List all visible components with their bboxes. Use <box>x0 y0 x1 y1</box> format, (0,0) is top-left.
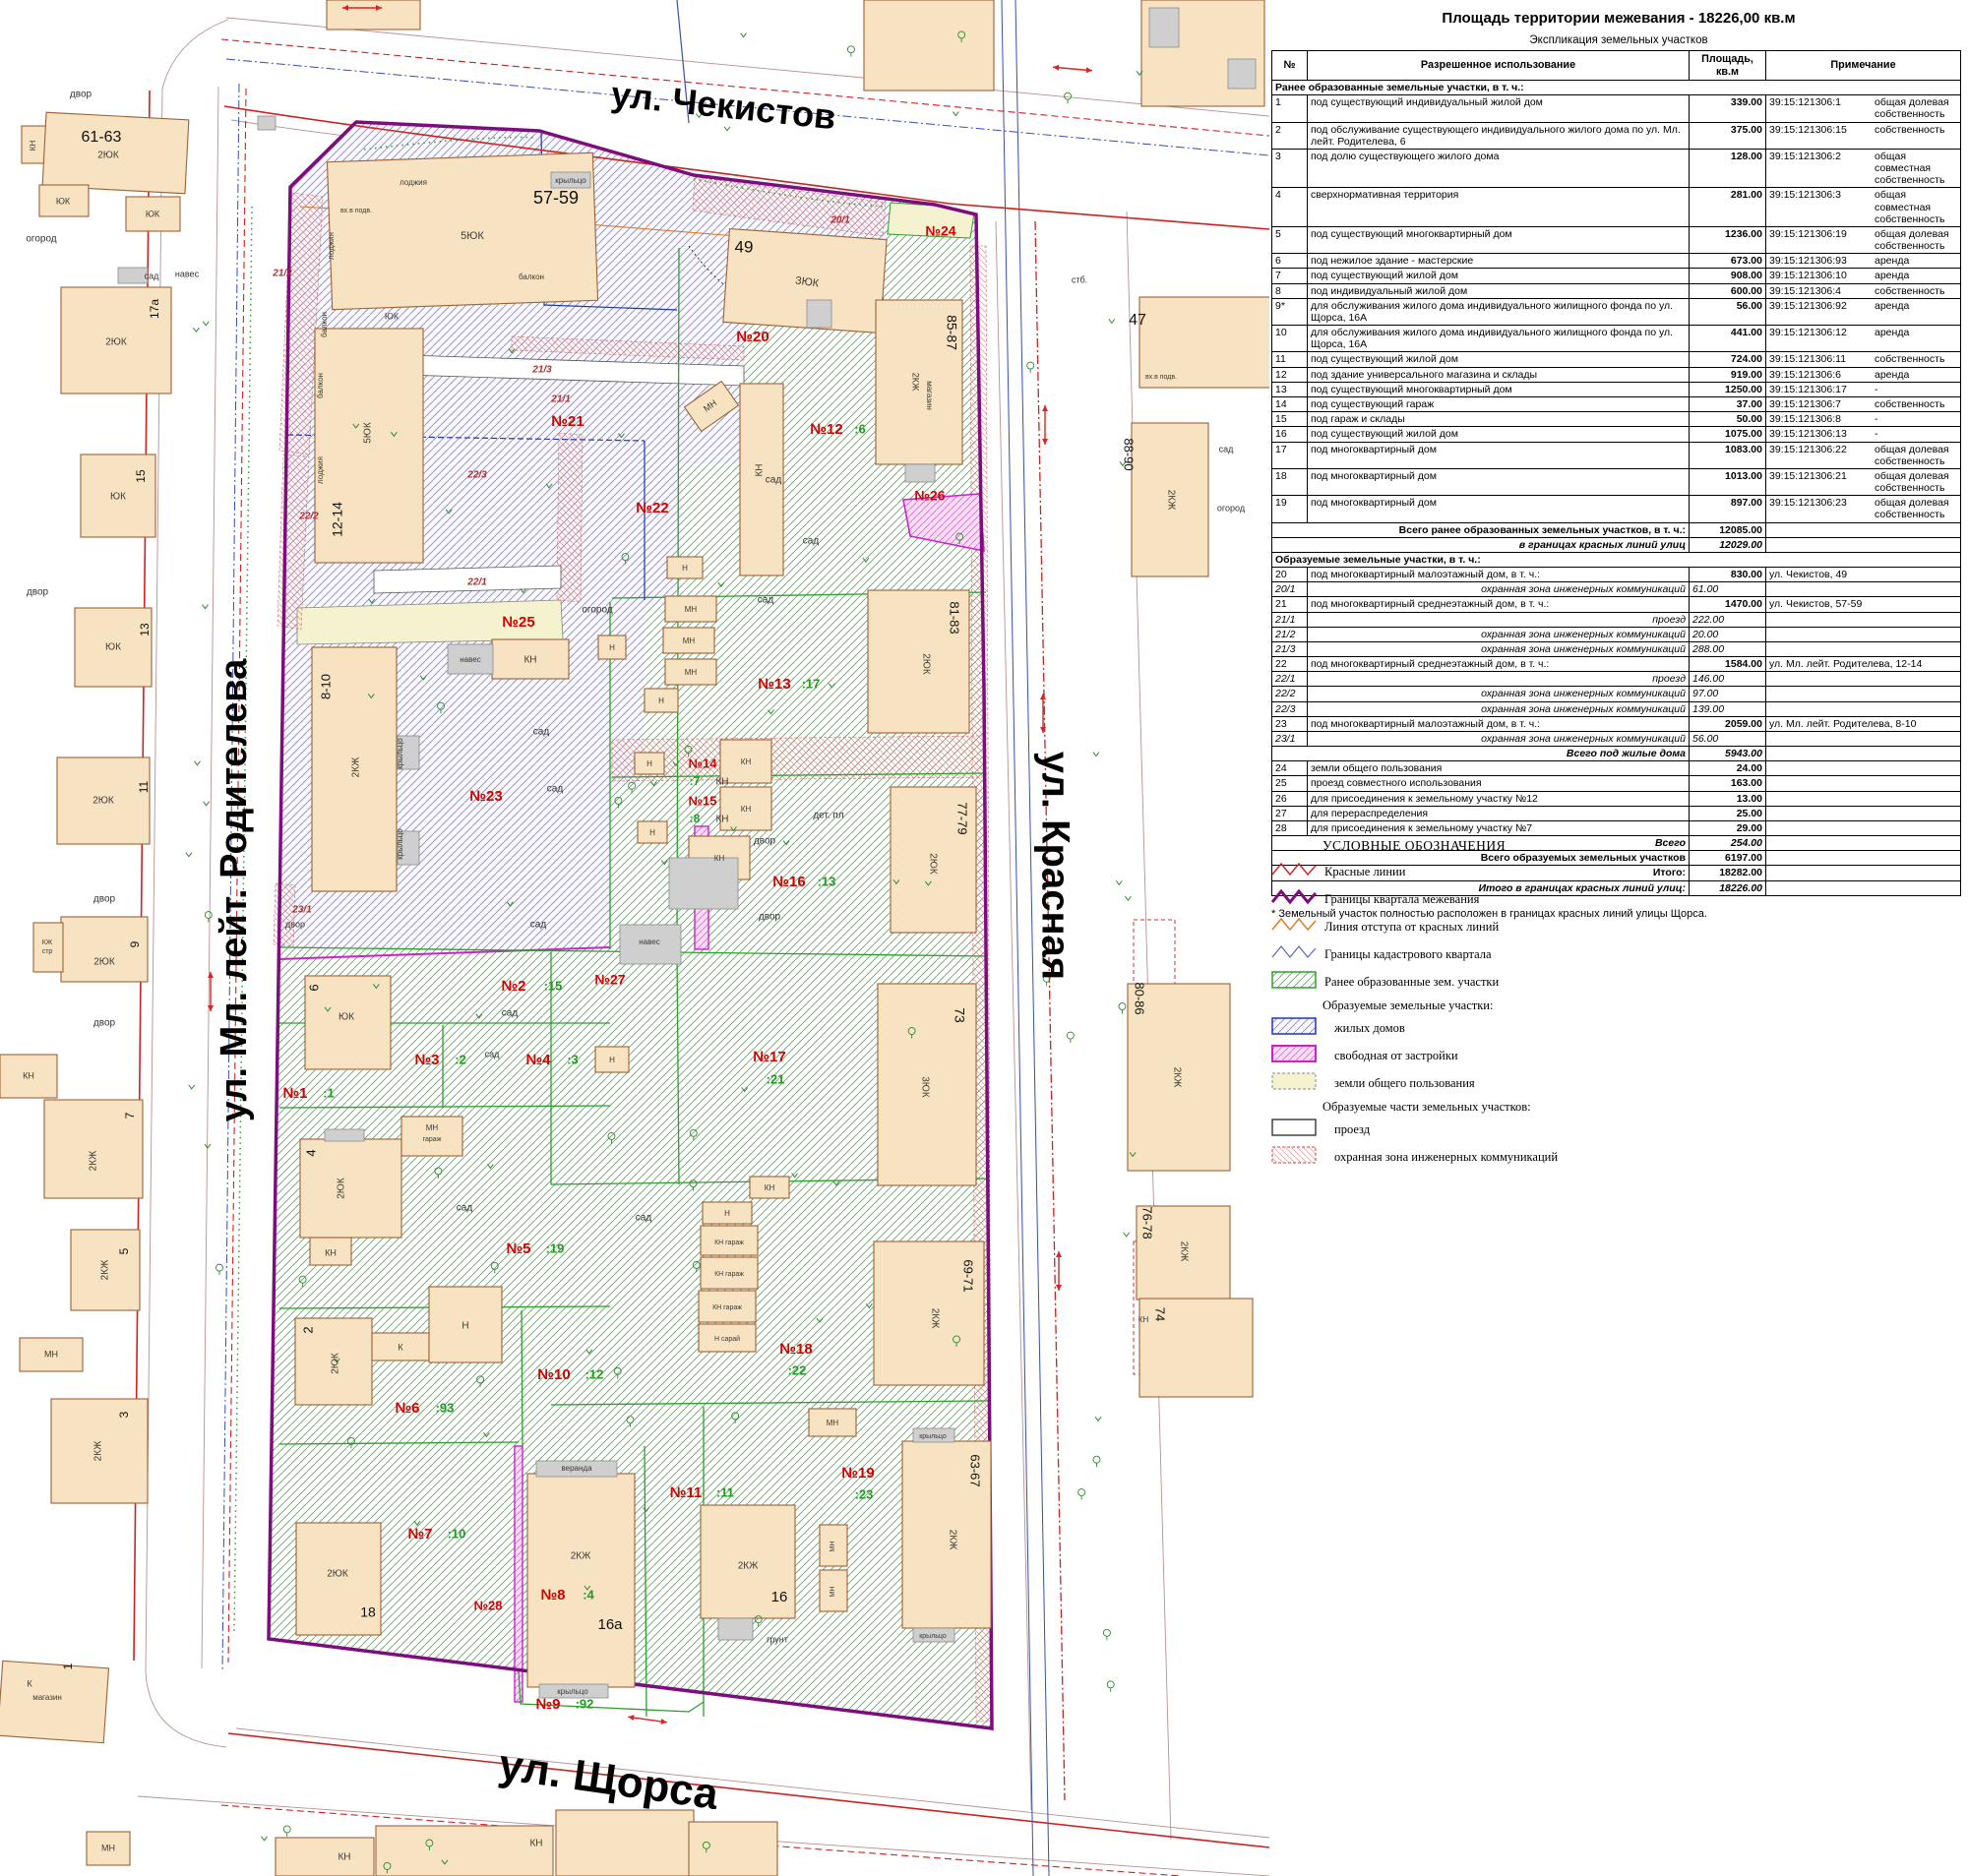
annex-structure <box>669 858 738 909</box>
ownership-note: общая долевая собственность <box>1875 228 1957 252</box>
plot-row: 19под многоквартирный дом897.0039:15:121… <box>1272 496 1961 522</box>
cadastral-number: 39:15:121306:8 <box>1769 413 1872 425</box>
house-number: 11 <box>137 780 151 793</box>
formed-plot-row: 20под многоквартирный малоэтажный дом, в… <box>1272 568 1961 582</box>
building-code: навес <box>639 938 659 946</box>
total-row: Всего ранее образованных земельных участ… <box>1272 522 1961 537</box>
ownership-note: - <box>1875 384 1957 395</box>
building-code: Н <box>658 696 664 705</box>
building-code: 2ЮК <box>920 653 931 675</box>
house-number: 76-78 <box>1140 1206 1155 1239</box>
cadastral-number: 39:15:121306:17 <box>1769 384 1872 395</box>
house-number: 81-83 <box>948 601 962 634</box>
plot-cadastral-suffix: :13 <box>818 874 836 888</box>
building-code: магазин <box>32 1693 62 1702</box>
legend-subheader: Образуемые земельные участки: <box>1322 999 1960 1013</box>
building-code: 2КЖ <box>1178 1241 1189 1262</box>
plot-cadastral-suffix: :1 <box>323 1085 335 1100</box>
building-code: МН <box>685 668 698 677</box>
building-code: Н <box>461 1321 468 1332</box>
map-annotation: сад <box>766 475 782 486</box>
legend-patch-item: Ранее образованные зем. участки <box>1271 970 1960 995</box>
cadastral-survey-sheet: { "panel": { "title": "Площадь территори… <box>0 0 1968 1876</box>
map-annotation: сад <box>636 1213 652 1224</box>
map-annotation: двор <box>754 836 776 847</box>
ownership-note: общая совместная собственность <box>1875 189 1957 225</box>
legend-line-symbol <box>1271 887 1317 912</box>
cadastral-number: 39:15:121306:13 <box>1769 428 1872 440</box>
house-number: 7 <box>123 1112 137 1119</box>
building-code: МН <box>101 1843 115 1852</box>
map-annotation: сад <box>1219 444 1235 454</box>
annex-structure <box>905 464 935 482</box>
building-code: МН <box>827 1419 839 1427</box>
plot-row: 24земли общего пользования24.00 <box>1272 761 1961 776</box>
building-code: КН <box>338 1852 350 1863</box>
building-code: Н <box>609 643 615 652</box>
plot-number: №5 <box>506 1241 530 1257</box>
house-number: 63-67 <box>968 1454 983 1486</box>
house-number: 15 <box>134 469 148 483</box>
subpart-number: 21/1 <box>550 394 571 405</box>
plot-number: №6 <box>395 1400 419 1417</box>
grass-mark <box>186 853 192 857</box>
cadastral-number: 39:15:121306:3 <box>1769 189 1872 225</box>
legend-label: Ранее образованные зем. участки <box>1324 975 1499 990</box>
cadastral-number: 39:15:121306:1 <box>1769 96 1872 120</box>
building-code: КН <box>715 777 728 788</box>
plot-row: 18под многоквартирный дом1013.0039:15:12… <box>1272 468 1961 495</box>
building-code: балкон <box>320 312 329 337</box>
ownership-note: - <box>1875 413 1957 425</box>
cadastral-number: 39:15:121306:19 <box>1769 228 1872 252</box>
building-code: 2ЮК <box>327 1569 348 1580</box>
tree-symbol <box>1027 362 1034 369</box>
tree-symbol <box>1093 1456 1100 1463</box>
house-number: 49 <box>735 237 754 256</box>
grass-mark <box>1095 1417 1101 1421</box>
building-code: 2ЮК <box>105 337 127 348</box>
plot-number: №11 <box>670 1484 703 1501</box>
plot-cadastral-suffix: :17 <box>802 676 821 691</box>
plot-row: 11под существующий жилой дом724.0039:15:… <box>1272 352 1961 367</box>
plot-number: №9 <box>535 1696 560 1713</box>
map-annotation: двор <box>759 912 781 923</box>
plot-cadastral-suffix: :6 <box>854 421 866 436</box>
map-annotation: сад <box>530 920 547 931</box>
building-code: ЮК <box>146 209 160 218</box>
plot-number: №26 <box>914 488 945 504</box>
building-code: крыльцо <box>396 828 404 860</box>
plot-number: №3 <box>414 1052 439 1068</box>
plot-cadastral-suffix: :22 <box>788 1362 807 1377</box>
legend-label: свободная от застройки <box>1334 1049 1458 1063</box>
tree-symbol <box>1107 1681 1114 1688</box>
building-code: КН <box>325 1247 337 1257</box>
annex-structure <box>718 1618 753 1640</box>
house-number: 85-87 <box>944 315 959 350</box>
map-annotation: дет. пл <box>813 811 844 821</box>
building-code: лоджия <box>316 456 325 484</box>
grass-mark <box>261 1837 267 1841</box>
plot-cadastral-suffix: :8 <box>690 812 701 825</box>
building-code: МН <box>426 1123 439 1132</box>
building-code: МН <box>683 636 696 645</box>
building-code: Н <box>649 828 655 837</box>
cadastral-number: 39:15:121306:12 <box>1769 327 1872 338</box>
plot-number: №22 <box>636 500 668 516</box>
building <box>689 1822 777 1876</box>
plot-number: №17 <box>753 1049 785 1065</box>
legend-patch-item: жилых домов <box>1271 1016 1960 1041</box>
plot-number: №20 <box>736 329 769 345</box>
plot-number: №19 <box>841 1465 874 1482</box>
tree-symbol <box>1078 1489 1085 1496</box>
ownership-note: общая долевая собственность <box>1875 470 1957 494</box>
plot-number: №10 <box>537 1366 570 1383</box>
building <box>376 1826 553 1876</box>
tree-symbol <box>847 46 854 53</box>
subpart-number: 21/3 <box>531 365 552 376</box>
map-annotation: сад <box>803 536 820 547</box>
plot-number: №8 <box>540 1587 565 1604</box>
building-code: МН <box>830 1542 836 1552</box>
building <box>276 1838 374 1876</box>
red-arrow <box>1053 64 1092 73</box>
ownership-note: аренда <box>1875 255 1957 267</box>
plot-number: №18 <box>779 1341 812 1358</box>
legend-label: Линия отступа от красных линий <box>1324 920 1499 935</box>
building-code: 2КЖ <box>929 1308 940 1329</box>
legend-label: проезд <box>1334 1122 1370 1137</box>
cadastral-number: 39:15:121306:22 <box>1769 444 1872 467</box>
ownership-note: собственность <box>1875 124 1957 136</box>
annex-structure <box>807 300 831 328</box>
ownership-note: собственность <box>1875 398 1957 410</box>
building-code: Н <box>609 1056 615 1064</box>
plot-number: №4 <box>525 1052 551 1068</box>
plot-row: 28для присоединения к земельному участку… <box>1272 820 1961 835</box>
plot-number: №28 <box>474 1598 503 1612</box>
annex-structure <box>1149 8 1179 47</box>
street-name: ул. Щорса <box>496 1740 722 1819</box>
grass-mark <box>193 328 199 332</box>
building <box>61 917 148 982</box>
formed-plot-row: 21под многоквартирный среднеэтажный дом,… <box>1272 597 1961 612</box>
cadastral-number: 39:15:121306:2 <box>1769 151 1872 187</box>
plot-number: №1 <box>282 1085 307 1102</box>
building <box>527 1474 635 1687</box>
legend-patch-symbol <box>1271 1071 1317 1096</box>
plot-row: 17под многоквартирный дом1083.0039:15:12… <box>1272 442 1961 468</box>
house-number: 57-59 <box>533 188 579 208</box>
ownership-note: аренда <box>1875 300 1957 312</box>
ownership-note: общая долевая собственность <box>1875 96 1957 120</box>
house-number: 12-14 <box>330 502 345 537</box>
building-code: Н <box>646 759 652 768</box>
house-number: 13 <box>138 623 152 636</box>
legend-line-symbol <box>1271 915 1317 939</box>
explication-panel: Площадь территории межевания - 18226,00 … <box>1271 0 1966 920</box>
subpart-row: 22/3охранная зона инженерных коммуникаци… <box>1272 701 1961 716</box>
grass-mark <box>953 112 958 116</box>
map-annotation: сад <box>457 1203 473 1214</box>
building-code: 2ЮК <box>97 151 119 161</box>
plot-row: 14под существующий гараж37.0039:15:12130… <box>1272 396 1961 411</box>
map-annotation: стб. <box>1072 274 1087 284</box>
building <box>556 1810 694 1876</box>
ownership-note: общая совместная собственность <box>1875 151 1957 187</box>
formed-plot-row: 23под многоквартирный малоэтажный дом, в… <box>1272 716 1961 731</box>
house-number: 16 <box>771 1589 788 1605</box>
building-code: магазин <box>925 381 934 410</box>
subpart-number: 20/1 <box>830 215 850 226</box>
building-code: вх.в подв. <box>340 208 372 214</box>
building-code: ЮК <box>56 196 71 206</box>
map-annotation: огород <box>1217 503 1246 513</box>
building-code: МН <box>685 605 698 614</box>
street-name: ул. Мл. лейт. Родителева <box>214 658 255 1121</box>
building-code: Н сарай <box>714 1335 740 1343</box>
ownership-note: общая долевая собственность <box>1875 497 1957 520</box>
ownership-note: аренда <box>1875 369 1957 381</box>
legend-line-symbol <box>1271 942 1317 967</box>
cadastral-number: 39:15:121306:10 <box>1769 270 1872 281</box>
plot-row: 25проезд совместного использования163.00 <box>1272 776 1961 791</box>
plot-cadastral-suffix: :4 <box>583 1587 594 1602</box>
plot-row: 27для перераспределения25.00 <box>1272 806 1961 820</box>
cadastral-number: 39:15:121306:6 <box>1769 369 1872 381</box>
tree-symbol <box>1103 1629 1110 1636</box>
tree-symbol <box>1067 1032 1074 1039</box>
annex-structure <box>258 116 276 130</box>
map-annotation: навес <box>175 269 200 278</box>
building-code: КН <box>755 463 766 476</box>
building-code: гараж <box>423 1136 442 1143</box>
cadastral-number: 39:15:121306:93 <box>1769 255 1872 267</box>
cadastral-number: 39:15:121306:23 <box>1769 497 1872 520</box>
plot-row: 15под гараж и склады50.0039:15:121306:8- <box>1272 412 1961 427</box>
plot-cadastral-suffix: :23 <box>855 1486 874 1501</box>
building-code: 2ЮК <box>93 957 115 968</box>
plot-row: 13под существующий многоквартирный дом12… <box>1272 382 1961 396</box>
plot-cadastral-suffix: :11 <box>716 1484 734 1499</box>
legend-label: земли общего пользования <box>1334 1076 1475 1091</box>
building-code: МН <box>830 1587 836 1598</box>
building-code: КН <box>741 757 752 766</box>
grass-mark <box>724 127 730 131</box>
red-arrow <box>628 1714 667 1725</box>
grass-mark <box>189 1085 195 1089</box>
street-name: ул. Чекистов <box>609 74 837 138</box>
subpart-row: 21/2охранная зона инженерных коммуникаци… <box>1272 627 1961 641</box>
building-code: 5ЮК <box>363 422 374 444</box>
legend-patch-symbol <box>1271 1044 1317 1068</box>
grass-mark <box>1125 896 1131 900</box>
tree-symbol <box>283 1826 290 1833</box>
building-code: ЮК <box>110 492 126 503</box>
grass-mark <box>203 322 209 326</box>
subpart-row: 22/2охранная зона инженерных коммуникаци… <box>1272 687 1961 701</box>
building-code: 2КЖ <box>93 1440 104 1461</box>
building-code: 2КЖ <box>1171 1067 1182 1088</box>
map-annotation: двор <box>27 587 49 598</box>
col-use: Разрешенное использование <box>1308 51 1690 81</box>
plot-row: 10для обслуживания жилого дома индивидуа… <box>1272 326 1961 352</box>
map-legend: УСЛОВНЫЕ ОБОЗНАЧЕНИЯ Красные линииГраниц… <box>1271 838 1960 1173</box>
building-code: 2КЖ <box>571 1551 591 1562</box>
map-annotation: огород <box>582 605 612 616</box>
plot-number: №23 <box>469 788 502 805</box>
building-code: КН <box>29 141 37 151</box>
ownership-note: общая долевая собственность <box>1875 444 1957 467</box>
plot-cadastral-suffix: :19 <box>546 1241 565 1255</box>
plot-number: №27 <box>594 972 625 988</box>
building-code: 5ЮК <box>461 230 484 242</box>
house-number: 17а <box>148 299 161 319</box>
building-code: 2ЮК <box>92 796 114 807</box>
grass-mark <box>741 33 747 37</box>
map-annotation: сад <box>145 271 160 280</box>
map-annotation: сад <box>485 1049 501 1059</box>
ownership-note: аренда <box>1875 327 1957 338</box>
annex-structure <box>118 268 148 283</box>
house-number: 88-90 <box>1122 438 1137 470</box>
grass-mark <box>1124 1233 1130 1237</box>
building-code: крыльцо <box>919 1433 947 1440</box>
house-number: 1 <box>61 1663 75 1669</box>
grass-mark <box>203 605 209 609</box>
legend-patch-symbol <box>1271 1118 1317 1142</box>
cadastral-number: 39:15:121306:21 <box>1769 470 1872 494</box>
map-annotation: двор <box>93 894 116 905</box>
tree-symbol <box>215 1264 222 1271</box>
legend-line-item: Границы кадастрового квартала <box>1271 942 1960 967</box>
building-code: Н <box>682 564 688 573</box>
tree-symbol <box>205 912 212 919</box>
house-number: 77-79 <box>955 802 970 834</box>
plot-cadastral-suffix: :12 <box>585 1366 604 1381</box>
legend-subheader: Образуемые части земельных участков: <box>1322 1100 1960 1115</box>
map-annotation: грунт <box>767 1634 788 1644</box>
building-code: КН гараж <box>714 1271 744 1278</box>
legend-line-item: Границы квартала межевания <box>1271 887 1960 912</box>
map-annotation: сад <box>533 727 550 738</box>
house-number: 3 <box>117 1411 131 1418</box>
building-code: крыльцо <box>555 176 586 185</box>
building-code: КН <box>741 805 752 814</box>
ownership-note: собственность <box>1875 285 1957 297</box>
building-code: 2КЖ <box>1165 490 1176 511</box>
legend-patch-item: земли общего пользования <box>1271 1071 1960 1096</box>
building <box>327 0 420 30</box>
house-number: 6 <box>306 984 321 991</box>
section-row: Ранее образованные земельные участки, в … <box>1272 81 1961 95</box>
building <box>864 0 994 91</box>
map-annotation: двор <box>70 90 92 100</box>
plot-cadastral-suffix: :21 <box>767 1071 785 1086</box>
house-number: 47 <box>1129 312 1146 329</box>
building-code: 2КЖ <box>947 1530 957 1550</box>
building-code: 2КЖ <box>351 756 362 777</box>
building-code: лоджия <box>327 232 336 260</box>
building-code: лоджия <box>400 178 427 187</box>
red-arrow <box>1042 405 1048 445</box>
ownership-note: аренда <box>1875 270 1957 281</box>
total-row: в границах красных линий улиц12029.00 <box>1272 537 1961 552</box>
map-annotation: двор <box>93 1018 116 1029</box>
map-annotation: сад <box>758 595 774 606</box>
sheet-title: Площадь территории межевания - 18226,00 … <box>1275 10 1962 27</box>
subpart-number: 22/3 <box>466 470 487 481</box>
plot-row: 4сверхнормативная территория281.0039:15:… <box>1272 188 1961 227</box>
subpart-row: 21/3охранная зона инженерных коммуникаци… <box>1272 641 1961 656</box>
legend-title: УСЛОВНЫЕ ОБОЗНАЧЕНИЯ <box>1322 838 1960 854</box>
map-annotation: сад <box>502 1008 519 1019</box>
legend-label: охранная зона инженерных коммуникаций <box>1334 1150 1558 1165</box>
section-row: Образуемые земельные участки, в т. ч.: <box>1272 552 1961 567</box>
tree-symbol <box>1065 92 1072 99</box>
ownership-note: - <box>1875 428 1957 440</box>
house-number: 18 <box>360 1604 376 1620</box>
building-code: ЮК <box>385 311 400 321</box>
red-arrow <box>1056 1251 1062 1291</box>
legend-patch-symbol <box>1271 1016 1317 1041</box>
building-code: 2КЖ <box>911 373 921 392</box>
building-code: КН <box>714 854 725 863</box>
house-number: 8-10 <box>318 674 333 699</box>
building-code: 3ЮК <box>919 1076 930 1098</box>
plot-row: 6под нежилое здание - мастерские673.0039… <box>1272 254 1961 269</box>
explication-table: № Разрешенное использование Площадь, кв.… <box>1271 50 1961 896</box>
house-number: 5 <box>117 1247 131 1254</box>
building-code: 2КЖ <box>89 1150 99 1171</box>
legend-patch-item: проезд <box>1271 1118 1960 1142</box>
building-code: К <box>27 1678 32 1688</box>
plot-row: 9*для обслуживания жилого дома индивидуа… <box>1272 298 1961 325</box>
plot-row: 26для присоединения к земельному участку… <box>1272 791 1961 806</box>
cadastral-number: 39:15:121306:11 <box>1769 353 1872 365</box>
plot-row: 16под существующий жилой дом1075.0039:15… <box>1272 427 1961 442</box>
map-annotation: сад <box>547 784 564 795</box>
building-code: ЮК <box>105 642 121 653</box>
building-code: КН <box>523 655 536 666</box>
grass-mark <box>1093 753 1099 756</box>
house-number: 74 <box>1153 1307 1168 1321</box>
plot-number: №12 <box>810 421 842 438</box>
building-code: КН <box>715 815 728 825</box>
legend-line-item: Красные линии <box>1271 860 1960 884</box>
legend-patch-item: охранная зона инженерных коммуникаций <box>1271 1145 1960 1170</box>
cadastral-number: 39:15:121306:4 <box>1769 285 1872 297</box>
plot-number: №16 <box>772 874 805 890</box>
legend-label: Границы кадастрового квартала <box>1324 947 1492 962</box>
house-number: 61-63 <box>82 129 122 146</box>
building-code: 2КЖ <box>100 1259 111 1280</box>
house-number: 4 <box>303 1149 318 1156</box>
plot-number: №7 <box>407 1526 432 1543</box>
plot-cadastral-suffix: :92 <box>576 1696 594 1711</box>
subpart-row: 21/1проезд222.00 <box>1272 612 1961 627</box>
building-code: К <box>398 1342 403 1352</box>
grass-mark <box>1109 319 1115 323</box>
plot-number: №24 <box>925 223 955 239</box>
building-code: навес <box>460 655 480 664</box>
plot-number: №14 <box>689 756 718 770</box>
plot-row: 12под здание универсального магазина и с… <box>1272 367 1961 382</box>
plot-row: 8под индивидуальный жилой дом600.0039:15… <box>1272 283 1961 298</box>
plot-row: 1под существующий индивидуальный жилой д… <box>1272 95 1961 122</box>
